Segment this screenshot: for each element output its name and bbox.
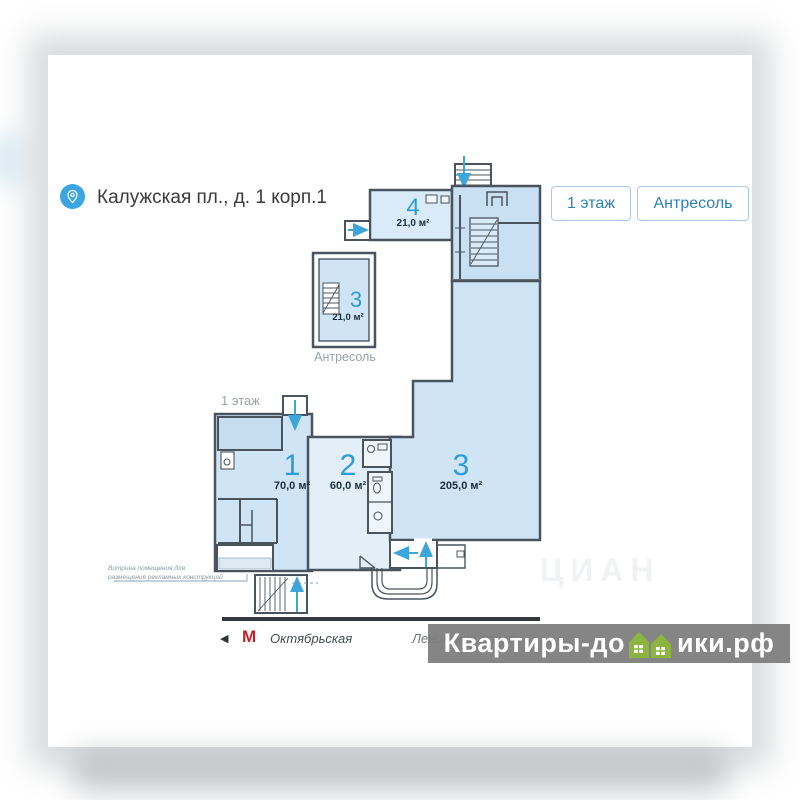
metro-station-label: Октябрьская — [270, 631, 352, 646]
room3-shape — [390, 281, 540, 540]
metro-logo-icon: М — [242, 627, 256, 647]
mezz-stair-tower — [452, 186, 540, 281]
room1-shape — [215, 414, 312, 571]
mezz-room3-number: 3 — [338, 289, 374, 311]
mezzanine-label: Антресоль — [313, 350, 377, 364]
showcase-annotation-line2: размещения рекламных конструкций — [108, 573, 228, 582]
room2-area: 60,0 м² — [313, 481, 383, 492]
room4-number: 4 — [381, 196, 445, 220]
showcase-annotation: Витрина помещения для размещения рекламн… — [108, 564, 228, 582]
room3-area: 205,0 м² — [418, 481, 504, 492]
floor-plan — [0, 0, 800, 800]
room3-number: 3 — [425, 451, 497, 481]
bottom-staircase — [255, 575, 318, 613]
entrance-steps-curved — [372, 568, 437, 599]
watermark-text-left: Квартиры-до — [444, 628, 625, 659]
watermark-text-right: ики.рф — [677, 628, 774, 659]
mezz-left-exit — [345, 221, 370, 240]
room2-number: 2 — [313, 451, 383, 481]
mezz-room3-area: 21,0 м² — [322, 313, 374, 323]
page: Калужская пл., д. 1 корп.1 1 этаж Антрес… — [0, 0, 800, 800]
houses-icon — [627, 629, 675, 659]
showcase-annotation-line1: Витрина помещения для — [108, 564, 228, 573]
room4-area: 21,0 м² — [381, 219, 445, 229]
floor1-label: 1 этаж — [221, 393, 260, 408]
faint-photo-watermark: ЦИАН — [540, 552, 661, 589]
site-watermark: Квартиры-до ики.рф — [428, 624, 790, 663]
direction-arrow-icon: ◀ — [220, 632, 228, 645]
street-line — [222, 617, 540, 621]
